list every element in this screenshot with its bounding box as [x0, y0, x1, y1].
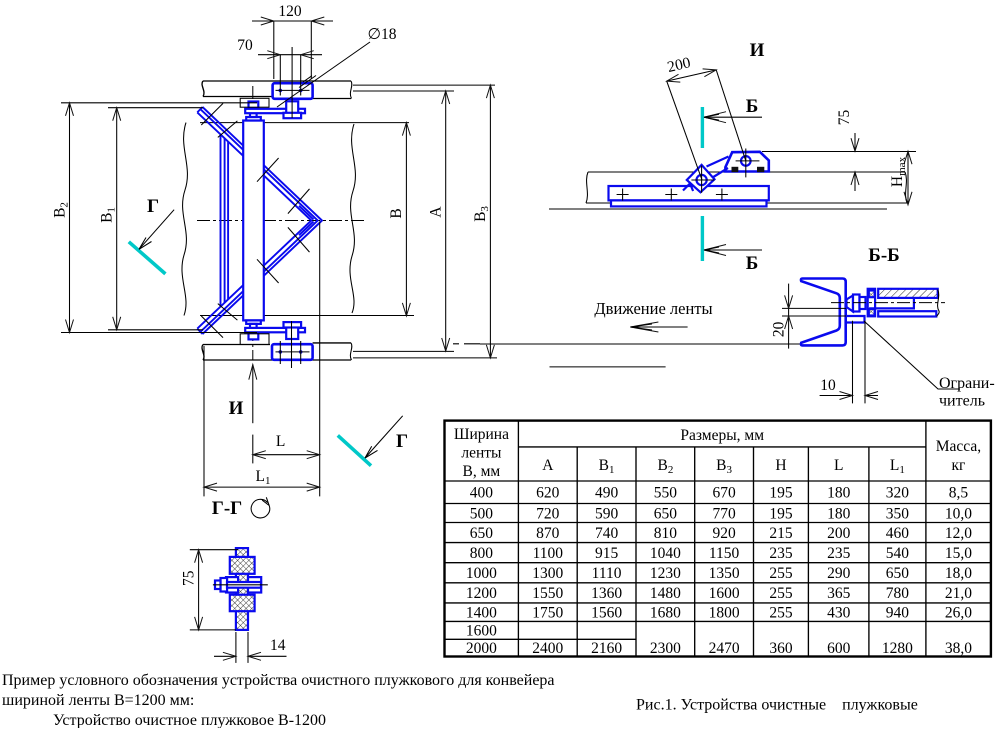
- svg-text:1750: 1750: [532, 604, 563, 621]
- svg-text:1300: 1300: [532, 565, 563, 582]
- svg-text:A: A: [427, 206, 444, 218]
- svg-text:2300: 2300: [650, 640, 681, 657]
- svg-text:180: 180: [827, 505, 851, 522]
- svg-text:235: 235: [827, 545, 851, 562]
- svg-text:B: B: [388, 208, 405, 218]
- svg-text:Г: Г: [396, 431, 408, 452]
- svg-text:430: 430: [827, 604, 851, 621]
- svg-text:Г-Г: Г-Г: [212, 498, 243, 519]
- svg-text:26,0: 26,0: [945, 604, 972, 621]
- svg-text:1350: 1350: [709, 565, 740, 582]
- svg-text:14: 14: [270, 637, 286, 654]
- svg-text:20: 20: [771, 321, 788, 337]
- svg-text:Б: Б: [746, 96, 759, 117]
- svg-text:780: 780: [886, 585, 910, 602]
- svg-text:650: 650: [470, 525, 494, 542]
- svg-text:L: L: [276, 433, 285, 450]
- svg-text:590: 590: [595, 505, 619, 522]
- svg-text:Б-Б: Б-Б: [868, 245, 899, 266]
- svg-text:70: 70: [237, 37, 253, 54]
- svg-text:1360: 1360: [591, 585, 622, 602]
- svg-text:255: 255: [769, 604, 793, 621]
- svg-text:A: A: [542, 457, 554, 474]
- svg-text:В, мм: В, мм: [463, 463, 501, 480]
- svg-text:870: 870: [536, 525, 560, 542]
- svg-text:600: 600: [827, 640, 851, 657]
- svg-text:Пример условного обозначения у: Пример условного обозначения устройства …: [2, 672, 555, 689]
- svg-text:255: 255: [769, 565, 793, 582]
- svg-text:1600: 1600: [466, 623, 497, 640]
- svg-text:1480: 1480: [650, 585, 681, 602]
- svg-text:1280: 1280: [882, 640, 913, 657]
- svg-text:1200: 1200: [466, 585, 497, 602]
- svg-text:650: 650: [654, 505, 678, 522]
- svg-text:920: 920: [712, 525, 736, 542]
- svg-text:кг: кг: [951, 457, 965, 474]
- svg-text:L: L: [834, 457, 843, 474]
- svg-text:290: 290: [827, 565, 851, 582]
- svg-text:740: 740: [595, 525, 619, 542]
- svg-text:Ширина: Ширина: [454, 426, 509, 443]
- svg-text:460: 460: [886, 525, 910, 542]
- svg-text:75: 75: [836, 110, 853, 126]
- svg-text:ленты: ленты: [461, 445, 502, 462]
- svg-text:H: H: [775, 457, 786, 474]
- svg-text:1150: 1150: [709, 545, 740, 562]
- svg-text:Рис.1. Устройства очистные: Рис.1. Устройства очистные плужковые: [636, 697, 918, 714]
- svg-text:720: 720: [536, 505, 560, 522]
- svg-text:читель: читель: [939, 393, 985, 410]
- svg-text:360: 360: [769, 640, 793, 657]
- svg-text:940: 940: [886, 604, 910, 621]
- svg-text:Движение ленты: Движение ленты: [594, 299, 712, 318]
- svg-text:540: 540: [886, 545, 910, 562]
- svg-text:670: 670: [712, 485, 736, 502]
- svg-text:Устройство очистное плужковое: Устройство очистное плужковое В-1200: [53, 712, 326, 728]
- svg-text:шириной ленты В=1200 мм:: шириной ленты В=1200 мм:: [2, 692, 194, 709]
- svg-text:15,0: 15,0: [945, 545, 972, 562]
- svg-text:1560: 1560: [591, 604, 622, 621]
- svg-text:∅18: ∅18: [367, 26, 396, 43]
- svg-text:320: 320: [886, 485, 910, 502]
- svg-text:365: 365: [827, 585, 851, 602]
- svg-text:10: 10: [820, 377, 836, 394]
- svg-text:215: 215: [769, 525, 793, 542]
- svg-text:490: 490: [595, 485, 619, 502]
- svg-text:235: 235: [769, 545, 793, 562]
- svg-text:620: 620: [536, 485, 560, 502]
- svg-text:2400: 2400: [532, 640, 563, 657]
- svg-text:38,0: 38,0: [945, 640, 972, 657]
- svg-text:120: 120: [278, 3, 302, 20]
- svg-text:650: 650: [886, 565, 910, 582]
- svg-text:350: 350: [886, 505, 910, 522]
- svg-text:1000: 1000: [466, 565, 497, 582]
- svg-text:1800: 1800: [709, 604, 740, 621]
- svg-text:75: 75: [181, 570, 198, 586]
- svg-text:Размеры, мм: Размеры, мм: [680, 427, 764, 444]
- svg-text:21,0: 21,0: [945, 585, 972, 602]
- svg-text:915: 915: [595, 545, 619, 562]
- svg-text:180: 180: [827, 485, 851, 502]
- svg-text:1230: 1230: [650, 565, 681, 582]
- svg-text:195: 195: [769, 505, 793, 522]
- svg-text:770: 770: [712, 505, 736, 522]
- svg-text:1680: 1680: [650, 604, 681, 621]
- svg-text:1400: 1400: [466, 604, 497, 621]
- svg-text:2470: 2470: [709, 640, 740, 657]
- svg-text:8,5: 8,5: [949, 485, 969, 502]
- svg-text:1550: 1550: [532, 585, 563, 602]
- svg-text:1600: 1600: [709, 585, 740, 602]
- svg-text:200: 200: [827, 525, 851, 542]
- svg-text:Ограни-: Ограни-: [939, 375, 995, 392]
- svg-text:И: И: [229, 398, 244, 419]
- svg-text:Масса,: Масса,: [936, 438, 981, 455]
- svg-text:255: 255: [769, 585, 793, 602]
- svg-text:2000: 2000: [466, 640, 497, 657]
- svg-text:810: 810: [654, 525, 678, 542]
- svg-text:10,0: 10,0: [945, 505, 972, 522]
- svg-text:12,0: 12,0: [945, 525, 972, 542]
- svg-text:1100: 1100: [533, 545, 564, 562]
- svg-text:2160: 2160: [591, 640, 622, 657]
- svg-text:550: 550: [654, 485, 678, 502]
- svg-text:1110: 1110: [592, 565, 622, 582]
- svg-text:Г: Г: [147, 196, 159, 217]
- svg-text:195: 195: [769, 485, 793, 502]
- svg-text:800: 800: [470, 545, 494, 562]
- svg-text:И: И: [750, 40, 765, 61]
- svg-text:Б: Б: [746, 253, 759, 274]
- svg-text:18,0: 18,0: [945, 565, 972, 582]
- svg-text:500: 500: [470, 505, 494, 522]
- svg-text:400: 400: [470, 485, 494, 502]
- svg-text:1040: 1040: [650, 545, 681, 562]
